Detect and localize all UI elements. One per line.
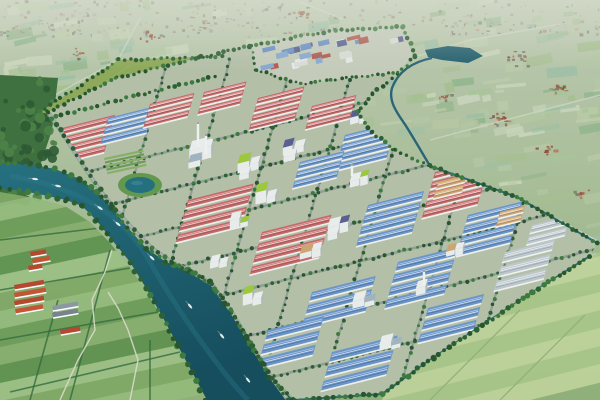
industrial-park-aerial-render <box>0 0 600 400</box>
horizon-haze <box>0 0 600 70</box>
aerial-render-viewport <box>0 0 600 400</box>
